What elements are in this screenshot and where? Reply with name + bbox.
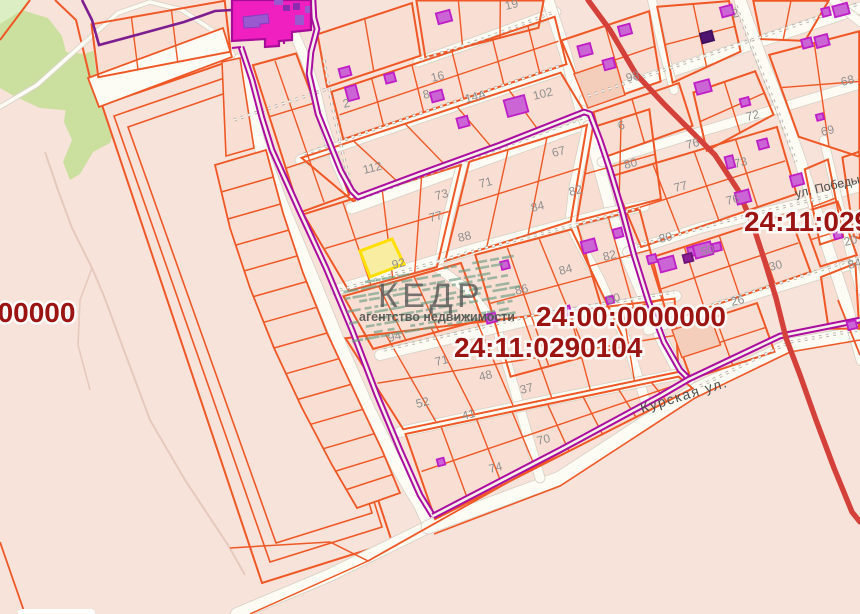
- svg-text:24:00:0000000: 24:00:0000000: [536, 301, 726, 332]
- svg-text:24:11:029: 24:11:029: [744, 206, 860, 237]
- svg-text:24:11:0290104: 24:11:0290104: [454, 332, 643, 363]
- svg-text:84: 84: [846, 255, 860, 272]
- svg-text:агентство недвижимости: агентство недвижимости: [359, 310, 515, 324]
- svg-text:000000: 000000: [0, 297, 75, 328]
